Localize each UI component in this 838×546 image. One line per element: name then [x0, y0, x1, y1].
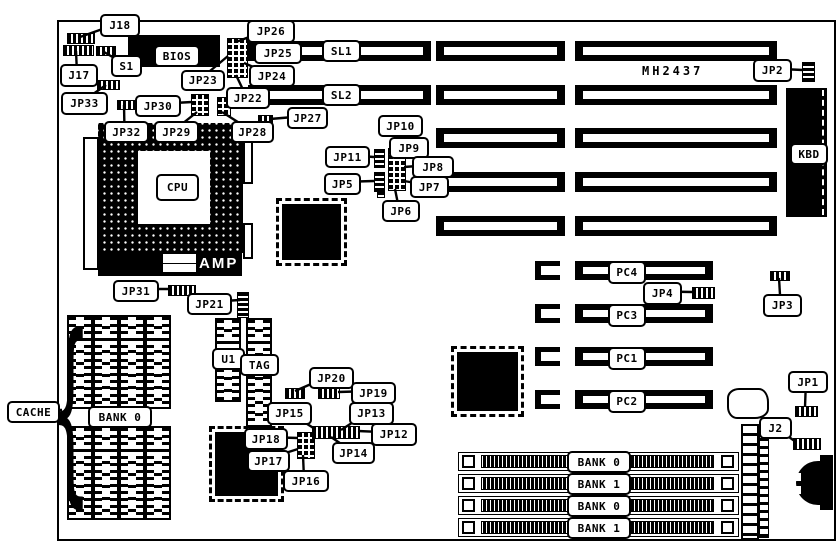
cpu-socket-center — [138, 151, 210, 224]
amp-notch-top — [163, 254, 196, 263]
amp-notch-bottom — [163, 264, 196, 272]
pci-slot-pc1 — [575, 347, 713, 366]
qfp-chip-3 — [215, 432, 278, 496]
isa-slot-5-mid — [436, 216, 565, 236]
cache-socket — [93, 315, 119, 409]
jumper-jp27 — [258, 115, 273, 126]
jumper-jp2 — [802, 62, 815, 82]
tag-socket — [246, 318, 272, 432]
qfp-chip-2 — [457, 352, 518, 411]
pci-slot-pc1-bracket — [535, 347, 560, 366]
jumper-jp33 — [97, 80, 120, 90]
jumper-jp6-pin — [377, 191, 385, 198]
jumper-jp20 — [285, 388, 305, 399]
kbd-controller-chip — [786, 88, 827, 217]
cache-socket — [93, 426, 119, 520]
edge-connector-ladder — [741, 424, 759, 540]
jumper-jp11 — [374, 149, 385, 168]
isa-slot-3-mid — [436, 128, 565, 148]
cache-socket — [119, 315, 145, 409]
simm-slot-bank1-b — [458, 518, 739, 537]
jumper-s1 — [96, 46, 116, 56]
bios-chip — [128, 35, 220, 67]
jumper-jp21 — [237, 292, 249, 318]
pci-slot-pc3-bracket — [535, 304, 560, 323]
simm-slot-bank0-a — [458, 452, 739, 471]
jumper-jp5 — [374, 172, 385, 192]
jumper-jp31 — [168, 285, 196, 296]
isa-slot-3-right — [575, 128, 777, 148]
isa-slot-sl1-left — [248, 41, 431, 61]
cache-socket — [145, 426, 171, 520]
cache-brace: { — [50, 312, 91, 508]
jumper-block-jp28 — [217, 97, 231, 116]
jumper-block-jp29-jp30 — [191, 94, 209, 116]
jumper-jp19 — [318, 388, 340, 399]
amp-brand-text: AMP — [199, 255, 238, 272]
pci-slot-pc3 — [575, 304, 713, 323]
isa-slot-4-mid — [436, 172, 565, 192]
jumper-j18 — [67, 33, 95, 44]
jumper-jp4 — [692, 287, 715, 299]
isa-slot-sl1-mid — [436, 41, 565, 61]
isa-slot-sl2-right — [575, 85, 777, 105]
simm-slot-bank0-b — [458, 496, 739, 515]
jumper-j17 — [63, 45, 94, 56]
pci-slot-pc4-bracket — [535, 261, 560, 280]
isa-slot-sl2-left — [248, 85, 431, 105]
isa-slot-4-right — [575, 172, 777, 192]
isa-slot-5-right — [575, 216, 777, 236]
simm-slot-bank1-a — [458, 474, 739, 493]
jumper-jp1 — [795, 406, 818, 417]
qfp-chip-1 — [282, 204, 341, 260]
jumper-strip-jp12-jp15 — [312, 426, 360, 439]
cpu-side-connector — [83, 137, 99, 270]
jumper-jp32 — [117, 100, 135, 110]
board-part-number: MH2437 — [642, 64, 703, 78]
isa-slot-sl2-mid — [436, 85, 565, 105]
battery-outline — [727, 388, 769, 419]
u1-socket — [215, 318, 241, 402]
edge-connector-ladder-2 — [759, 432, 769, 538]
jumper-jp3 — [770, 271, 790, 281]
pci-slot-pc4 — [575, 261, 713, 280]
motherboard-diagram: AMP { MH2437 — [0, 0, 838, 546]
socket-lever-top — [243, 139, 253, 184]
cache-socket — [119, 426, 145, 520]
din-notch-1 — [794, 473, 801, 481]
pci-slot-pc2-bracket — [535, 390, 560, 409]
jumper-block-jp6-jp10 — [388, 148, 406, 191]
socket-lever-bottom — [243, 223, 253, 259]
jumper-j2 — [793, 438, 821, 450]
isa-slot-sl1-right — [575, 41, 777, 61]
din-notch-2 — [794, 486, 801, 494]
cache-socket — [145, 315, 171, 409]
pci-slot-pc2 — [575, 390, 713, 409]
jumper-block-jp22-jp26 — [227, 38, 248, 78]
